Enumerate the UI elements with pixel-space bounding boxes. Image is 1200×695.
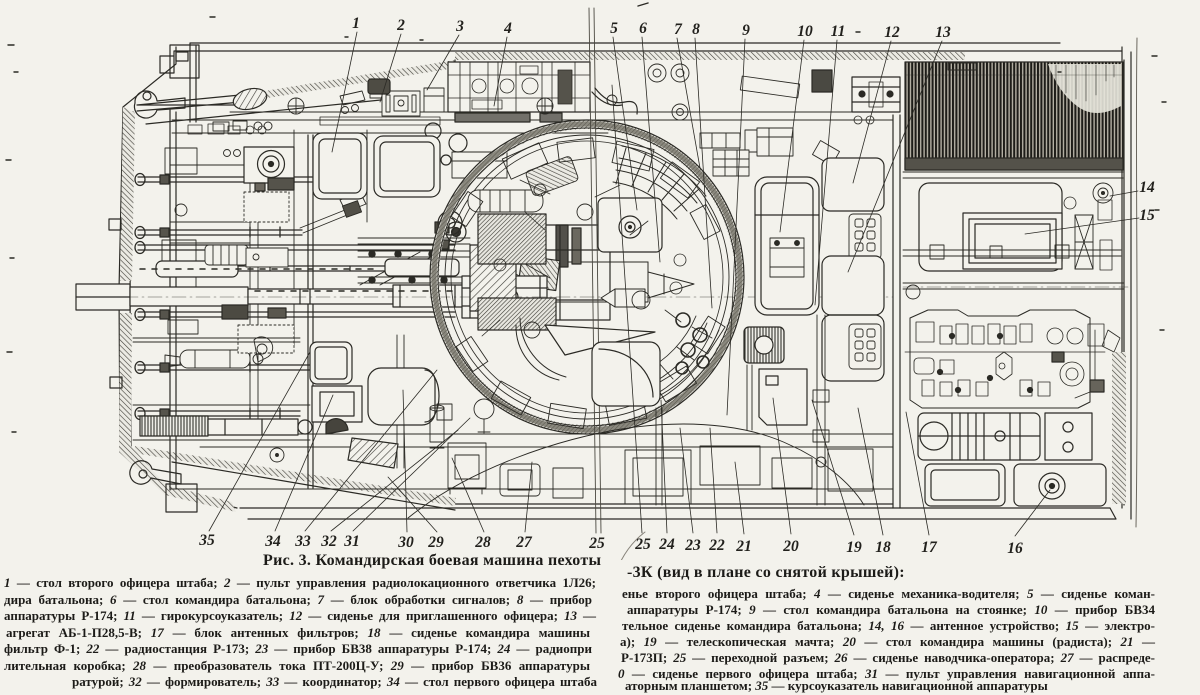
svg-text:24: 24 <box>658 536 675 553</box>
svg-text:35: 35 <box>198 532 215 549</box>
svg-text:11: 11 <box>831 23 846 40</box>
svg-text:28: 28 <box>474 534 491 551</box>
svg-text:21: 21 <box>735 538 752 555</box>
svg-text:25: 25 <box>634 536 651 553</box>
svg-text:30: 30 <box>397 534 414 551</box>
svg-text:20: 20 <box>782 538 799 555</box>
svg-text:17: 17 <box>921 539 938 556</box>
svg-text:8: 8 <box>692 21 700 38</box>
svg-text:16: 16 <box>1007 540 1023 557</box>
svg-text:18: 18 <box>875 539 891 556</box>
svg-text:15: 15 <box>1139 207 1155 224</box>
svg-text:27: 27 <box>515 534 533 551</box>
svg-text:12: 12 <box>884 24 900 41</box>
svg-text:2: 2 <box>396 17 405 34</box>
svg-text:32: 32 <box>320 533 337 550</box>
svg-text:9: 9 <box>742 22 750 39</box>
svg-text:4: 4 <box>503 20 512 37</box>
svg-text:10: 10 <box>797 23 813 40</box>
svg-text:14: 14 <box>1139 179 1155 196</box>
svg-text:13: 13 <box>935 24 951 41</box>
svg-text:5: 5 <box>610 20 618 37</box>
svg-text:3: 3 <box>455 18 464 35</box>
svg-text:25: 25 <box>588 535 605 552</box>
svg-text:19: 19 <box>846 539 862 556</box>
svg-text:1: 1 <box>352 15 360 32</box>
svg-text:6: 6 <box>639 20 647 37</box>
svg-text:7: 7 <box>674 21 683 38</box>
svg-text:34: 34 <box>264 533 281 550</box>
svg-text:23: 23 <box>684 537 701 554</box>
svg-text:29: 29 <box>427 534 444 551</box>
svg-text:33: 33 <box>294 533 311 550</box>
svg-text:22: 22 <box>708 537 725 554</box>
svg-text:31: 31 <box>343 533 360 550</box>
